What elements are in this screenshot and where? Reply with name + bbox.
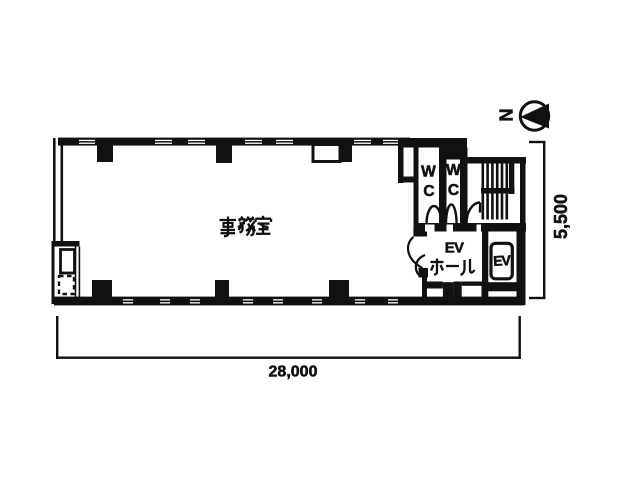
svg-text:C: C (423, 183, 434, 200)
svg-text:W: W (446, 162, 461, 179)
svg-text:N: N (497, 109, 517, 122)
svg-text:28,000: 28,000 (269, 364, 318, 381)
svg-text:5,500: 5,500 (551, 194, 571, 239)
svg-text:EV: EV (493, 252, 512, 269)
svg-text:EV: EV (445, 240, 464, 257)
svg-text:C: C (448, 182, 459, 199)
svg-text:W: W (421, 164, 436, 181)
